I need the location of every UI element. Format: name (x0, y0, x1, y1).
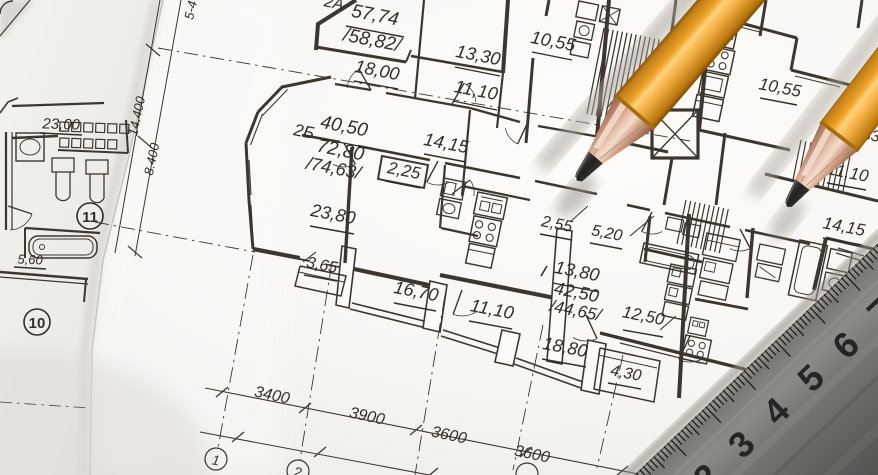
svg-text:23,00: 23,00 (41, 115, 81, 133)
svg-text:5,60: 5,60 (17, 252, 44, 268)
svg-text:10: 10 (29, 315, 46, 332)
svg-text:2Б: 2Б (291, 120, 316, 143)
svg-text:11: 11 (82, 209, 98, 226)
